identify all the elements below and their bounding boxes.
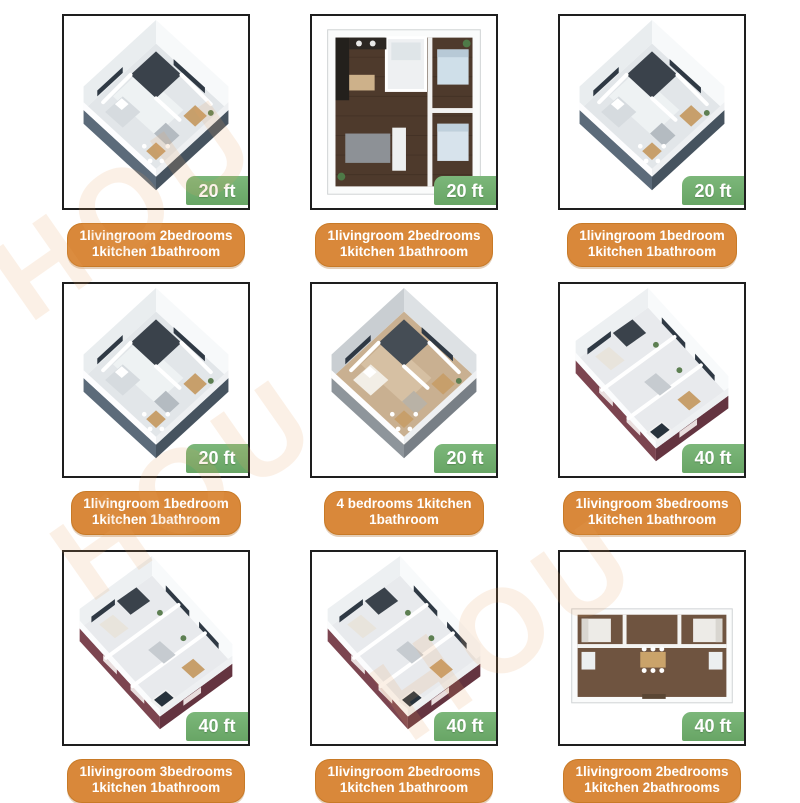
caption-line-1: 1livingroom 2bedrooms	[575, 764, 728, 780]
size-badge: 20 ft	[186, 444, 248, 473]
size-badge: 20 ft	[682, 176, 744, 205]
caption-pill: 1livingroom 2bedrooms 1kitchen 1bathroom	[315, 759, 492, 803]
size-badge: 40 ft	[682, 712, 744, 741]
caption-line-1: 1livingroom 2bedrooms	[79, 228, 232, 244]
floorplan-thumbnail: 20 ft	[62, 282, 250, 478]
caption-line-2: 1kitchen 2bathrooms	[575, 780, 728, 796]
caption-line-1: 1livingroom 2bedrooms	[327, 764, 480, 780]
plan-card: 40 ft 1livingroom 3bedrooms 1kitchen 1ba…	[62, 550, 250, 803]
caption-line-2: 1kitchen 1bathroom	[79, 780, 232, 796]
plan-card: 40 ft 1livingroom 2bedrooms 1kitchen 1ba…	[310, 550, 498, 803]
caption-line-2: 1kitchen 1bathroom	[575, 512, 728, 528]
caption-line-2: 1kitchen 1bathroom	[79, 244, 232, 260]
plan-card: 20 ft 4 bedrooms 1kitchen 1bathroom	[310, 282, 498, 535]
size-badge: 20 ft	[186, 176, 248, 205]
caption-line-1: 1livingroom 2bedrooms	[327, 228, 480, 244]
floorplan-thumbnail: 40 ft	[310, 550, 498, 746]
plan-card: 40 ft 1livingroom 2bedrooms 1kitchen 2ba…	[558, 550, 746, 803]
caption-line-1: 1livingroom 3bedrooms	[79, 764, 232, 780]
caption-line-2: 1kitchen 1bathroom	[327, 244, 480, 260]
caption-pill: 1livingroom 1bedroom 1kitchen 1bathroom	[567, 223, 737, 267]
floorplan-thumbnail: 20 ft	[310, 282, 498, 478]
caption-pill: 1livingroom 1bedroom 1kitchen 1bathroom	[71, 491, 241, 535]
plan-card: 20 ft 1livingroom 1bedroom 1kitchen 1bat…	[62, 282, 250, 535]
caption-pill: 1livingroom 2bedrooms 1kitchen 1bathroom	[315, 223, 492, 267]
caption-pill: 1livingroom 2bedrooms 1kitchen 2bathroom…	[563, 759, 740, 803]
plan-card: 20 ft 1livingroom 2bedrooms 1kitchen 1ba…	[310, 14, 498, 267]
floorplan-thumbnail: 40 ft	[62, 550, 250, 746]
size-badge: 20 ft	[434, 176, 496, 205]
floorplan-thumbnail: 40 ft	[558, 550, 746, 746]
plan-card: 40 ft 1livingroom 3bedrooms 1kitchen 1ba…	[558, 282, 746, 535]
floorplan-thumbnail: 20 ft	[62, 14, 250, 210]
floorplan-thumbnail: 20 ft	[558, 14, 746, 210]
caption-pill: 1livingroom 3bedrooms 1kitchen 1bathroom	[67, 759, 244, 803]
plan-card: 20 ft 1livingroom 1bedroom 1kitchen 1bat…	[558, 14, 746, 267]
caption-pill: 1livingroom 3bedrooms 1kitchen 1bathroom	[563, 491, 740, 535]
floorplan-grid: 20 ft 1livingroom 2bedrooms 1kitchen 1ba…	[62, 14, 746, 803]
size-badge: 40 ft	[434, 712, 496, 741]
size-badge: 20 ft	[434, 444, 496, 473]
plan-card: 20 ft 1livingroom 2bedrooms 1kitchen 1ba…	[62, 14, 250, 267]
floorplan-thumbnail: 40 ft	[558, 282, 746, 478]
caption-line-2: 1kitchen 1bathroom	[327, 780, 480, 796]
caption-line-1: 1livingroom 1bedroom	[579, 228, 725, 244]
caption-line-1: 1livingroom 1bedroom	[83, 496, 229, 512]
caption-line-1: 1livingroom 3bedrooms	[575, 496, 728, 512]
size-badge: 40 ft	[186, 712, 248, 741]
caption-pill: 1livingroom 2bedrooms 1kitchen 1bathroom	[67, 223, 244, 267]
caption-pill: 4 bedrooms 1kitchen 1bathroom	[324, 491, 483, 535]
caption-line-2: 1kitchen 1bathroom	[579, 244, 725, 260]
floorplan-thumbnail: 20 ft	[310, 14, 498, 210]
caption-line-2: 1bathroom	[336, 512, 471, 528]
caption-line-2: 1kitchen 1bathroom	[83, 512, 229, 528]
size-badge: 40 ft	[682, 444, 744, 473]
caption-line-1: 4 bedrooms 1kitchen	[336, 496, 471, 512]
